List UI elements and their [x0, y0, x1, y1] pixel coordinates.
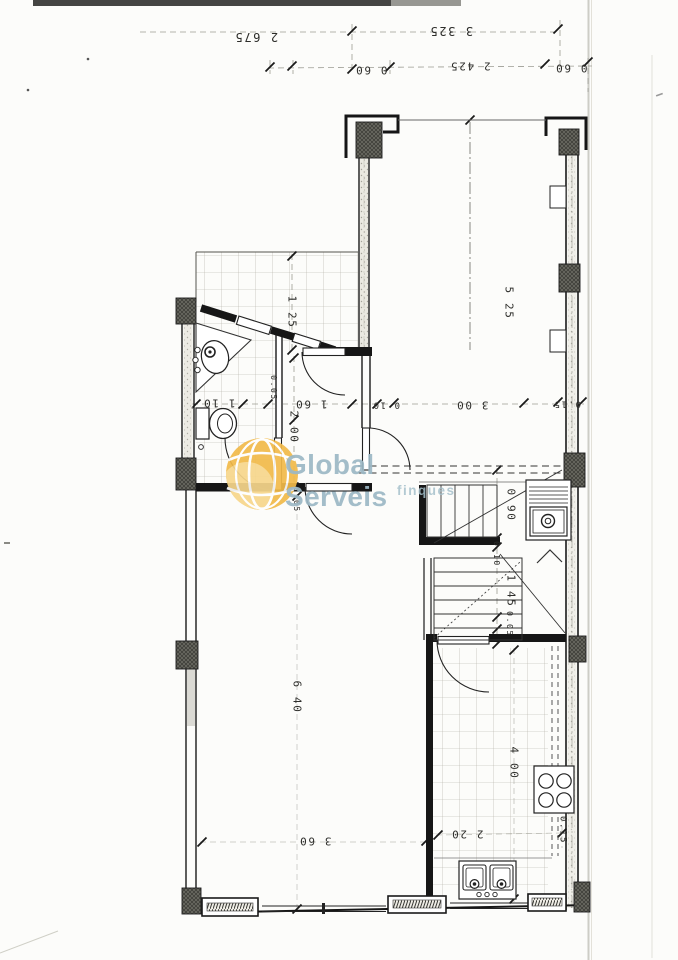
stove-hob — [534, 766, 574, 813]
floor-plan-drawing — [0, 0, 678, 960]
double-kitchen-sink — [459, 861, 516, 899]
staircase-upper-flight — [427, 485, 497, 537]
kitchenette-sink — [526, 480, 571, 540]
counter-dashed-edge — [552, 646, 558, 856]
stair-direction-arrow — [537, 550, 562, 563]
scanned-floor-plan: 2 6753 3250 602 4250 601 255 250.051 101… — [0, 0, 678, 960]
